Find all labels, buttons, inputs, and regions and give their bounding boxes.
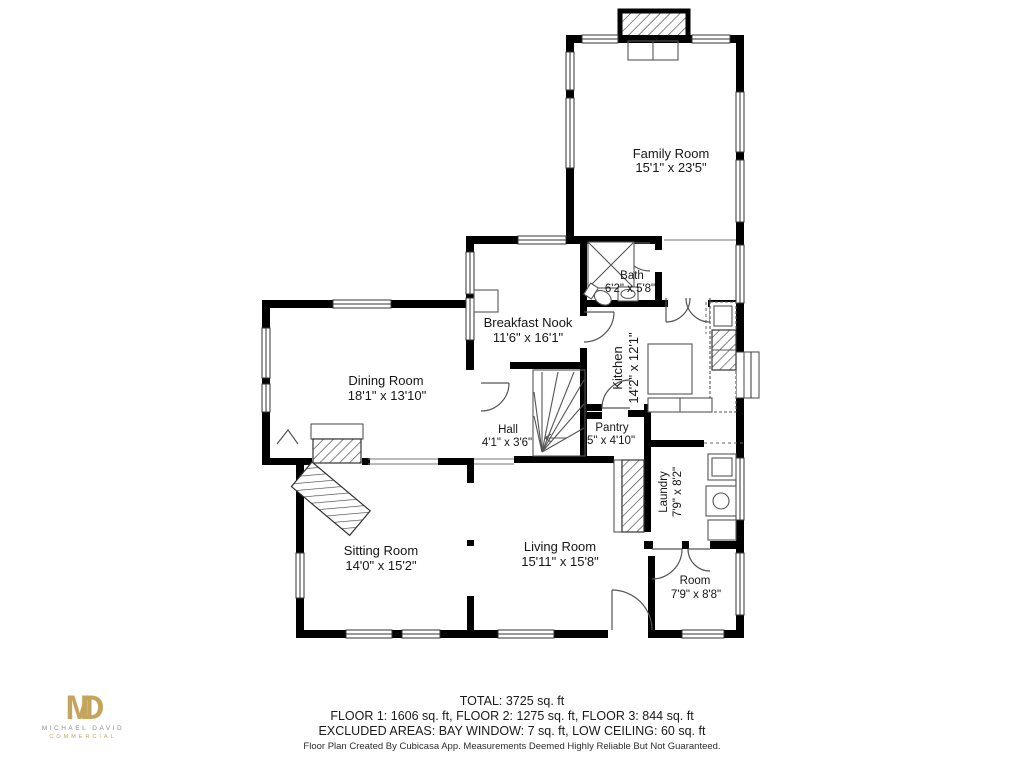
logo-division: COMMERCIAL <box>28 734 138 740</box>
label-family-room-dims: 15'1" x 23'5" <box>635 160 707 175</box>
floor-areas: FLOOR 1: 1606 sq. ft, FLOOR 2: 1275 sq. … <box>0 709 1024 724</box>
label-living-room-dims: 15'11" x 15'8" <box>521 554 599 569</box>
kitchen-sink <box>714 306 732 326</box>
label-breakfast-nook: Breakfast Nook <box>484 315 573 330</box>
total-area: TOTAL: 3725 sq. ft <box>0 694 1024 709</box>
label-pantry-dims: 5" x 4'10" <box>587 435 635 447</box>
area-summary: TOTAL: 3725 sq. ft FLOOR 1: 1606 sq. ft,… <box>0 694 1024 739</box>
label-kitchen: Kitchen <box>610 346 625 389</box>
label-dining-room-dims: 18'1" x 13'10" <box>348 388 427 403</box>
dining-fireplace <box>313 439 361 463</box>
room-door-arc-2 <box>688 549 710 571</box>
nook-kitchen-door-arc <box>584 312 614 342</box>
credit-line: Floor Plan Created By Cubicasa App. Meas… <box>0 741 1024 752</box>
label-sitting-room-dims: 14'0" x 15'2" <box>345 558 417 573</box>
floor-plan-page: Family Room 15'1" x 23'5" Bath 6'2" x 5'… <box>0 0 1024 768</box>
label-hall-dims: 4'1" x 3'6" <box>482 437 532 449</box>
label-room: Room <box>680 575 711 587</box>
logo-monogram: MD <box>28 693 138 723</box>
label-breakfast-nook-dims: 11'6" x 16'1" <box>493 330 564 345</box>
nook-counter <box>474 290 498 312</box>
label-kitchen-dims: 14'2" x 12'1" <box>626 332 641 404</box>
fixtures-layer <box>291 41 736 540</box>
label-pantry: Pantry <box>595 422 628 434</box>
label-laundry: Laundry <box>658 471 670 513</box>
hall-door-arc <box>481 383 509 411</box>
label-hall: Hall <box>498 424 518 436</box>
dryer <box>708 520 736 540</box>
bifold-door <box>277 430 298 444</box>
label-living-room: Living Room <box>524 539 596 554</box>
logo-company-name: MICHAEL DAVID <box>28 725 138 732</box>
company-logo: MD MICHAEL DAVID COMMERCIAL <box>28 693 138 740</box>
kitchen-island <box>648 344 692 394</box>
excluded-areas: EXCLUDED AREAS: BAY WINDOW: 7 sq. ft, LO… <box>0 724 1024 739</box>
label-dining-room: Dining Room <box>348 373 423 388</box>
winder-stairs <box>533 370 585 456</box>
label-bath-dims: 6'2" x 5'8" <box>605 283 655 295</box>
entry-door-arc <box>612 590 652 630</box>
label-laundry-dims: 7'9" x 8'2" <box>672 467 684 517</box>
label-sitting-room: Sitting Room <box>344 543 418 558</box>
label-bath: Bath <box>620 270 644 282</box>
room-door-arc-1 <box>652 549 682 579</box>
main-stairs <box>614 460 644 532</box>
dining-hearth <box>311 424 363 439</box>
floor-plan-canvas: Family Room 15'1" x 23'5" Bath 6'2" x 5'… <box>0 0 1024 768</box>
laundry-sink <box>706 486 736 516</box>
label-family-room: Family Room <box>633 146 710 161</box>
label-room-dims: 7'9" x 8'8" <box>671 589 721 601</box>
openings-layer <box>368 240 744 464</box>
